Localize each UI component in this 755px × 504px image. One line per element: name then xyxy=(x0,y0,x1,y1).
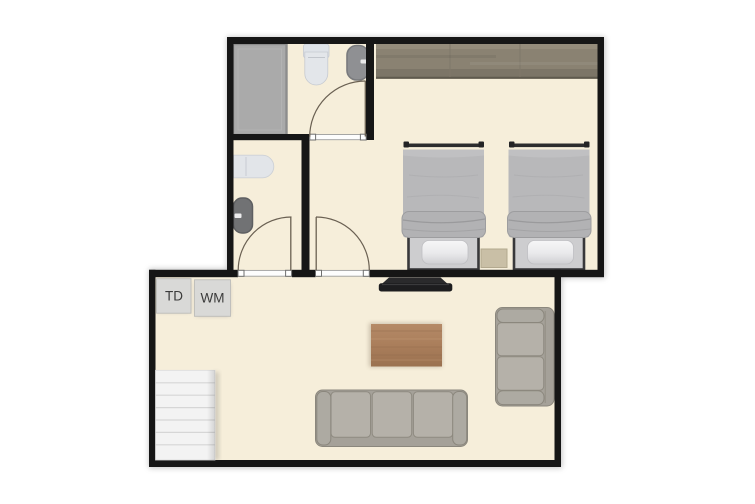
svg-text:WM: WM xyxy=(201,291,225,306)
svg-text:TD: TD xyxy=(165,289,183,304)
